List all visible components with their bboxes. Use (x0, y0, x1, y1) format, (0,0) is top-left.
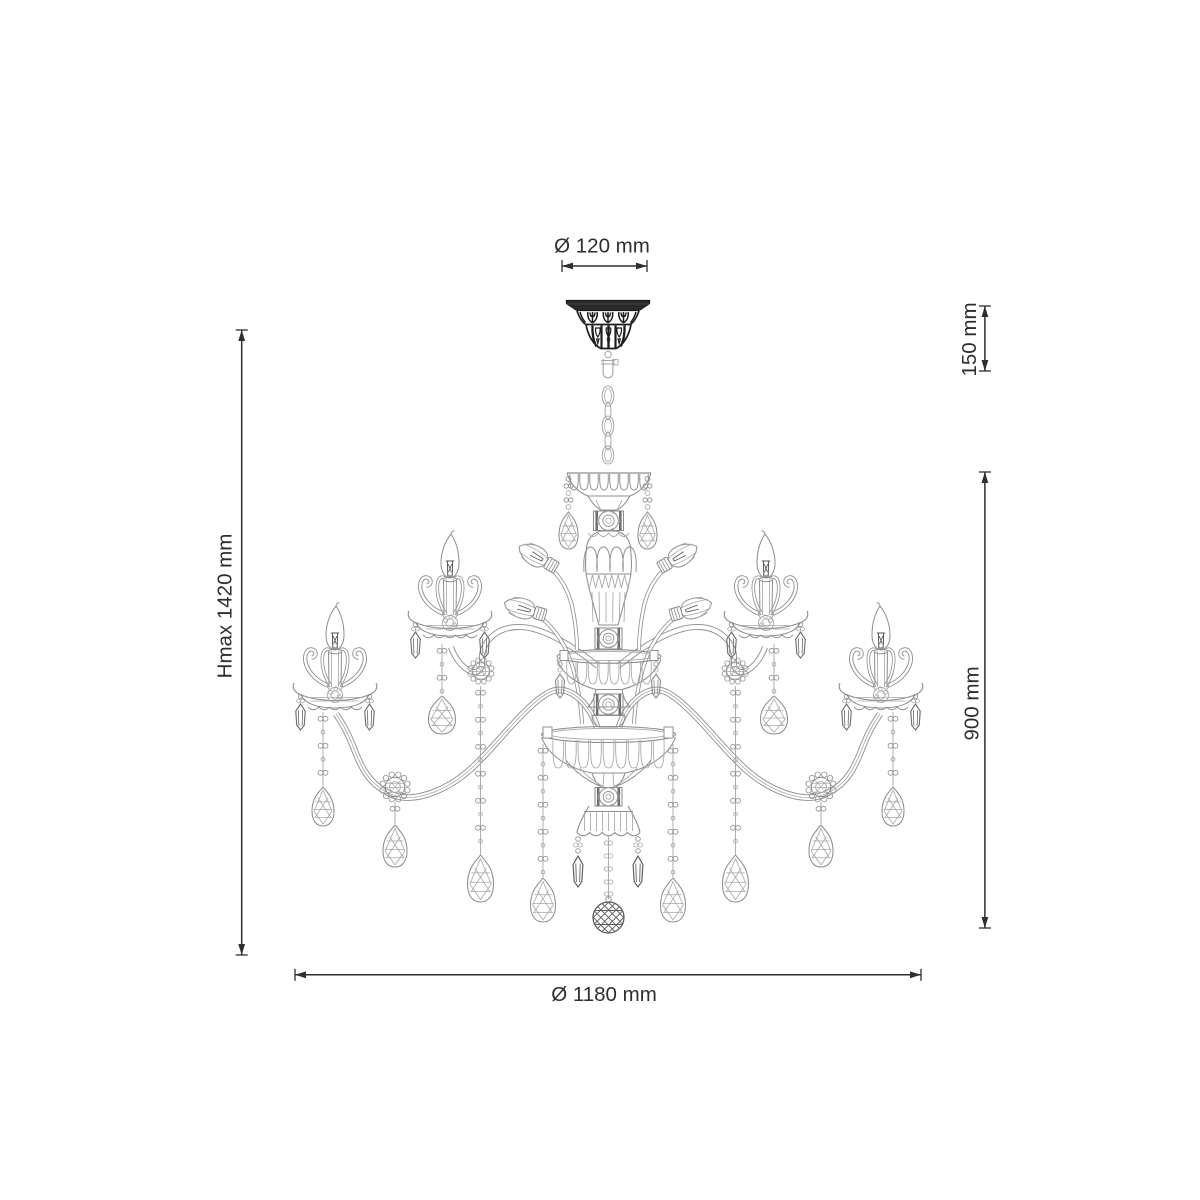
svg-text:Hmax 1420 mm: Hmax 1420 mm (214, 534, 237, 679)
svg-text:150 mm: 150 mm (958, 302, 981, 376)
svg-text:Ø 1180 mm: Ø 1180 mm (551, 983, 657, 1006)
svg-text:900 mm: 900 mm (961, 666, 984, 740)
svg-text:Ø 120 mm: Ø 120 mm (554, 235, 650, 258)
